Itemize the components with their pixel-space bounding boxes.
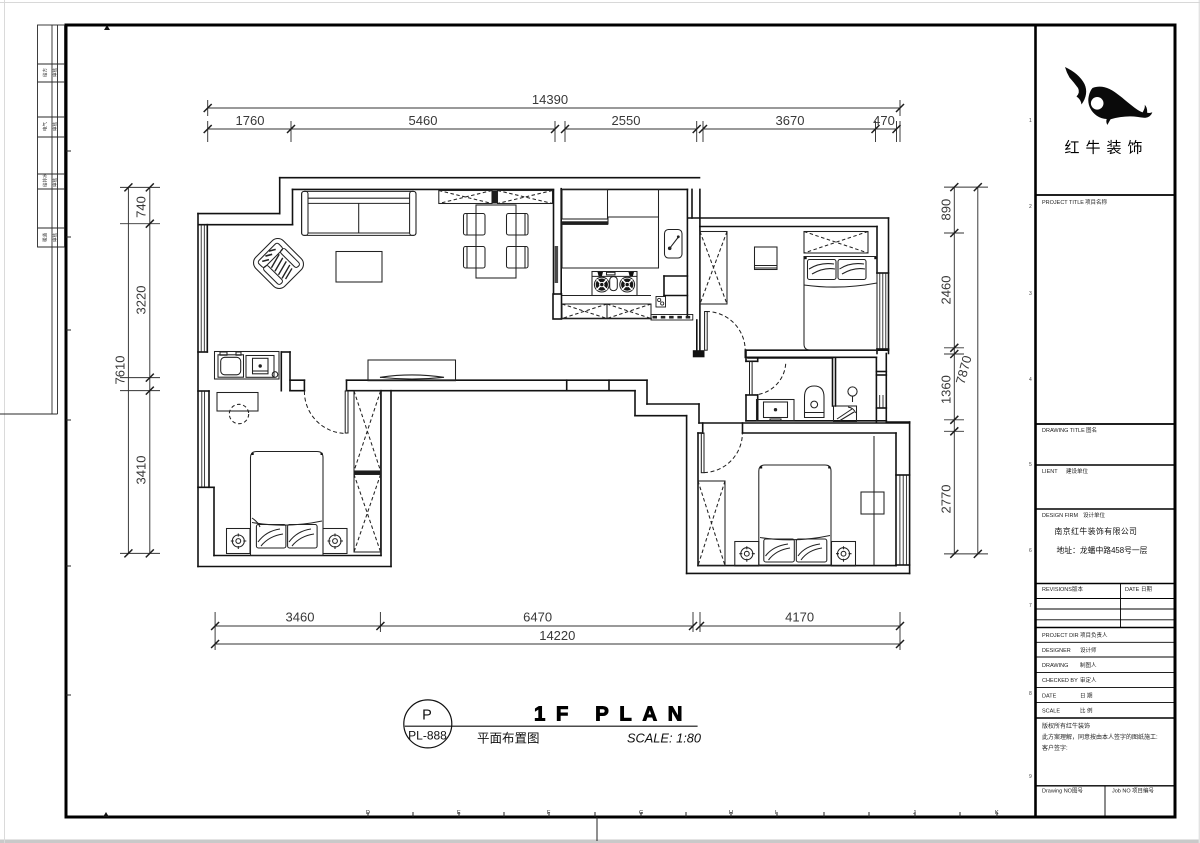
svg-text:审定人: 审定人 — [1080, 676, 1097, 684]
svg-text:审核: 审核 — [52, 233, 59, 242]
svg-text:给方: 给方 — [42, 68, 49, 77]
svg-text:DATE: DATE — [1042, 694, 1057, 700]
svg-text:H: H — [729, 810, 733, 816]
svg-text:3670: 3670 — [776, 113, 805, 128]
svg-text:图号: 图号 — [1072, 787, 1084, 795]
svg-text:4: 4 — [1029, 377, 1032, 383]
svg-text:图名: 图名 — [1086, 426, 1097, 434]
svg-text:审核: 审核 — [52, 122, 59, 131]
svg-text:6470: 6470 — [523, 610, 552, 625]
svg-text:项目名称: 项目名称 — [1085, 198, 1108, 206]
svg-text:1360: 1360 — [939, 375, 954, 404]
svg-text:设计师: 设计师 — [1080, 646, 1097, 654]
svg-text:P: P — [422, 708, 432, 724]
svg-text:D: D — [366, 810, 370, 816]
svg-text:制图人: 制图人 — [1080, 661, 1097, 669]
svg-text:7610: 7610 — [113, 356, 128, 385]
svg-text:890: 890 — [939, 199, 954, 221]
svg-text:14390: 14390 — [532, 92, 568, 107]
svg-text:7: 7 — [1029, 603, 1032, 609]
svg-text:2550: 2550 — [612, 113, 641, 128]
svg-text:南京红牛装饰有限公司: 南京红牛装饰有限公司 — [1055, 526, 1138, 536]
svg-text:J: J — [913, 810, 916, 816]
svg-text:3460: 3460 — [286, 610, 315, 625]
svg-text:比 例: 比 例 — [1080, 707, 1093, 715]
svg-text:PROJECT TITLE: PROJECT TITLE — [1042, 200, 1084, 206]
svg-text:DATE: DATE — [1125, 587, 1140, 593]
svg-text:审核: 审核 — [52, 68, 59, 77]
svg-text:设计单位: 设计单位 — [1083, 511, 1106, 519]
svg-text:PL-888: PL-888 — [408, 729, 447, 743]
svg-text:2: 2 — [1029, 204, 1032, 210]
svg-text:SCALE: 1:80: SCALE: 1:80 — [627, 731, 702, 746]
svg-text:DRAWING: DRAWING — [1042, 663, 1068, 669]
svg-text:DESIGN FIRM: DESIGN FIRM — [1042, 513, 1078, 519]
svg-text:审核: 审核 — [52, 178, 59, 187]
svg-text:4170: 4170 — [785, 610, 814, 625]
svg-text:2460: 2460 — [939, 276, 954, 305]
svg-text:3410: 3410 — [134, 456, 149, 485]
svg-text:14220: 14220 — [539, 628, 575, 643]
svg-text:Job NO: Job NO — [1112, 789, 1131, 795]
svg-text:1: 1 — [1029, 118, 1032, 124]
svg-text:项目负责人: 项目负责人 — [1080, 631, 1108, 639]
svg-text:9: 9 — [1029, 774, 1032, 780]
svg-text:5: 5 — [1029, 462, 1032, 468]
svg-text:CHECKED BY: CHECKED BY — [1042, 678, 1078, 684]
svg-text:平面布置图: 平面布置图 — [477, 732, 540, 746]
svg-text:红牛装饰: 红牛装饰 — [1064, 140, 1148, 157]
svg-text:版权所有红牛装饰: 版权所有红牛装饰 — [1042, 722, 1090, 730]
svg-text:DESIGNER: DESIGNER — [1042, 648, 1071, 654]
svg-text:建设单位: 建设单位 — [1066, 467, 1089, 475]
svg-text:电气: 电气 — [42, 122, 48, 131]
svg-text:1760: 1760 — [236, 113, 265, 128]
svg-text:3: 3 — [1029, 291, 1032, 297]
svg-text:REVISIONS: REVISIONS — [1042, 587, 1072, 593]
svg-text:470: 470 — [873, 113, 895, 128]
svg-text:3220: 3220 — [134, 286, 149, 315]
svg-text:2770: 2770 — [939, 485, 954, 514]
svg-text:G: G — [639, 810, 643, 816]
svg-text:此方案理解，同意按由本人签字的图纸施工:: 此方案理解，同意按由本人签字的图纸施工: — [1042, 733, 1158, 741]
svg-text:给排水: 给排水 — [42, 173, 49, 187]
svg-text:地址：龙蟠中路458号一层: 地址：龙蟠中路458号一层 — [1057, 545, 1148, 555]
svg-text:6: 6 — [1029, 548, 1032, 554]
svg-text:8: 8 — [1029, 691, 1032, 697]
svg-text:K: K — [995, 810, 999, 816]
svg-text:LIENT: LIENT — [1042, 469, 1058, 475]
svg-text:E: E — [457, 810, 461, 816]
svg-text:客户签字:: 客户签字: — [1042, 744, 1068, 752]
svg-text:DRAWING TITLE: DRAWING TITLE — [1042, 428, 1085, 434]
svg-text:1F PLAN: 1F PLAN — [534, 703, 693, 726]
svg-text:PROJECT DIR: PROJECT DIR — [1042, 633, 1079, 639]
svg-text:Drawing NO: Drawing NO — [1042, 789, 1073, 795]
svg-text:日期: 日期 — [1141, 586, 1153, 593]
svg-text:SCALE: SCALE — [1042, 709, 1060, 715]
svg-text:暖通: 暖通 — [42, 233, 49, 242]
svg-text:日 期: 日 期 — [1080, 693, 1093, 700]
svg-text:5460: 5460 — [409, 113, 438, 128]
svg-text:740: 740 — [134, 196, 149, 218]
svg-text:项目编号: 项目编号 — [1132, 787, 1155, 795]
svg-text:版本: 版本 — [1072, 585, 1084, 593]
